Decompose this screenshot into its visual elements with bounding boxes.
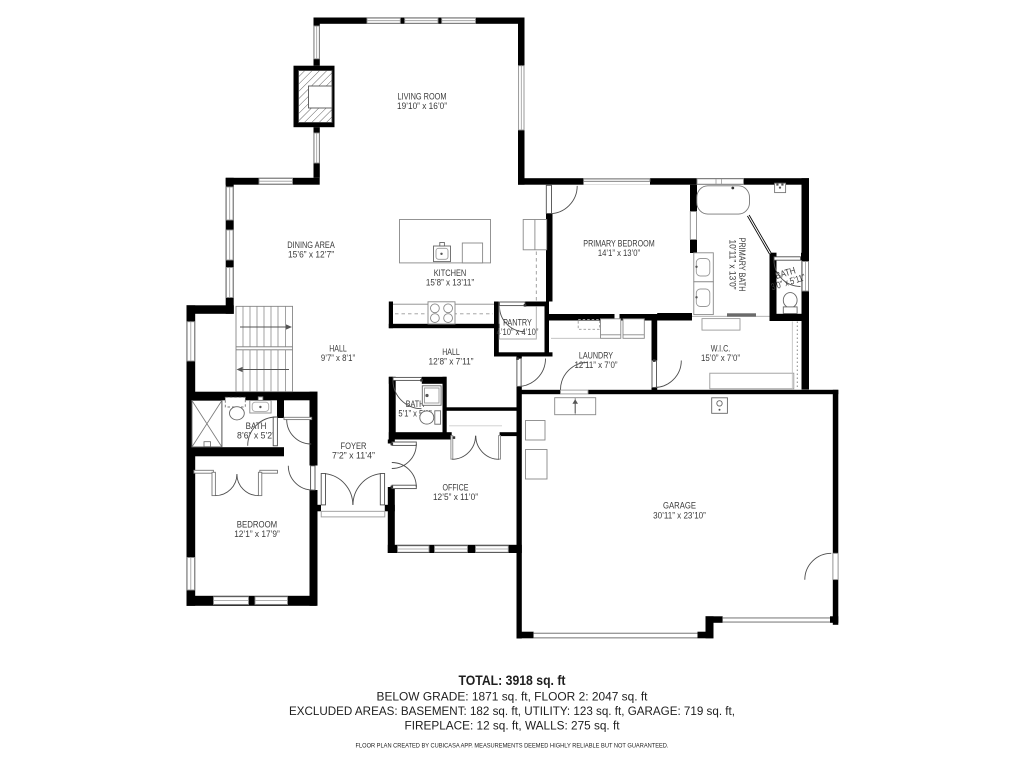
svg-text:7’2” x 11’4”: 7’2” x 11’4” [332, 451, 375, 462]
svg-text:12’1” x 17’9”: 12’1” x 17’9” [234, 529, 280, 540]
svg-text:12’5” x 11’0”: 12’5” x 11’0” [433, 492, 478, 503]
svg-text:BELOW GRADE: 1871 sq. ft, FLOO: BELOW GRADE: 1871 sq. ft, FLOOR 2: 2047 … [377, 690, 649, 704]
svg-text:14’1” x 13’0”: 14’1” x 13’0” [598, 248, 640, 259]
svg-text:19’10” x 16’0”: 19’10” x 16’0” [397, 101, 447, 112]
svg-text:8’6” x 5’2”: 8’6” x 5’2” [237, 431, 275, 442]
svg-text:FIREPLACE: 12 sq. ft, WALLS: 2: FIREPLACE: 12 sq. ft, WALLS: 275 sq. ft [405, 719, 621, 733]
svg-text:15’0” x 7’0”: 15’0” x 7’0” [701, 353, 740, 364]
svg-text:10’11” x 13’0”: 10’11” x 13’0” [727, 240, 738, 290]
svg-text:30’11” x 23’10”: 30’11” x 23’10” [653, 511, 706, 522]
svg-text:9’7” x 8’1”: 9’7” x 8’1” [321, 353, 355, 364]
svg-text:FLOOR PLAN CREATED BY CUBICASA: FLOOR PLAN CREATED BY CUBICASA APP. MEAS… [356, 743, 669, 750]
svg-text:EXCLUDED AREAS: BASEMENT: 182: EXCLUDED AREAS: BASEMENT: 182 sq. ft, UT… [289, 704, 735, 718]
svg-text:4’10” x 4’10”: 4’10” x 4’10” [497, 327, 539, 338]
svg-text:12’11” x 7’0”: 12’11” x 7’0” [575, 360, 618, 371]
svg-text:12’8” x 7’11”: 12’8” x 7’11” [429, 357, 474, 368]
svg-text:TOTAL: 3918 sq. ft: TOTAL: 3918 sq. ft [459, 673, 566, 688]
svg-text:15’6” x 12’7”: 15’6” x 12’7” [288, 250, 334, 261]
svg-text:15’8” x 13’11”: 15’8” x 13’11” [426, 278, 474, 289]
